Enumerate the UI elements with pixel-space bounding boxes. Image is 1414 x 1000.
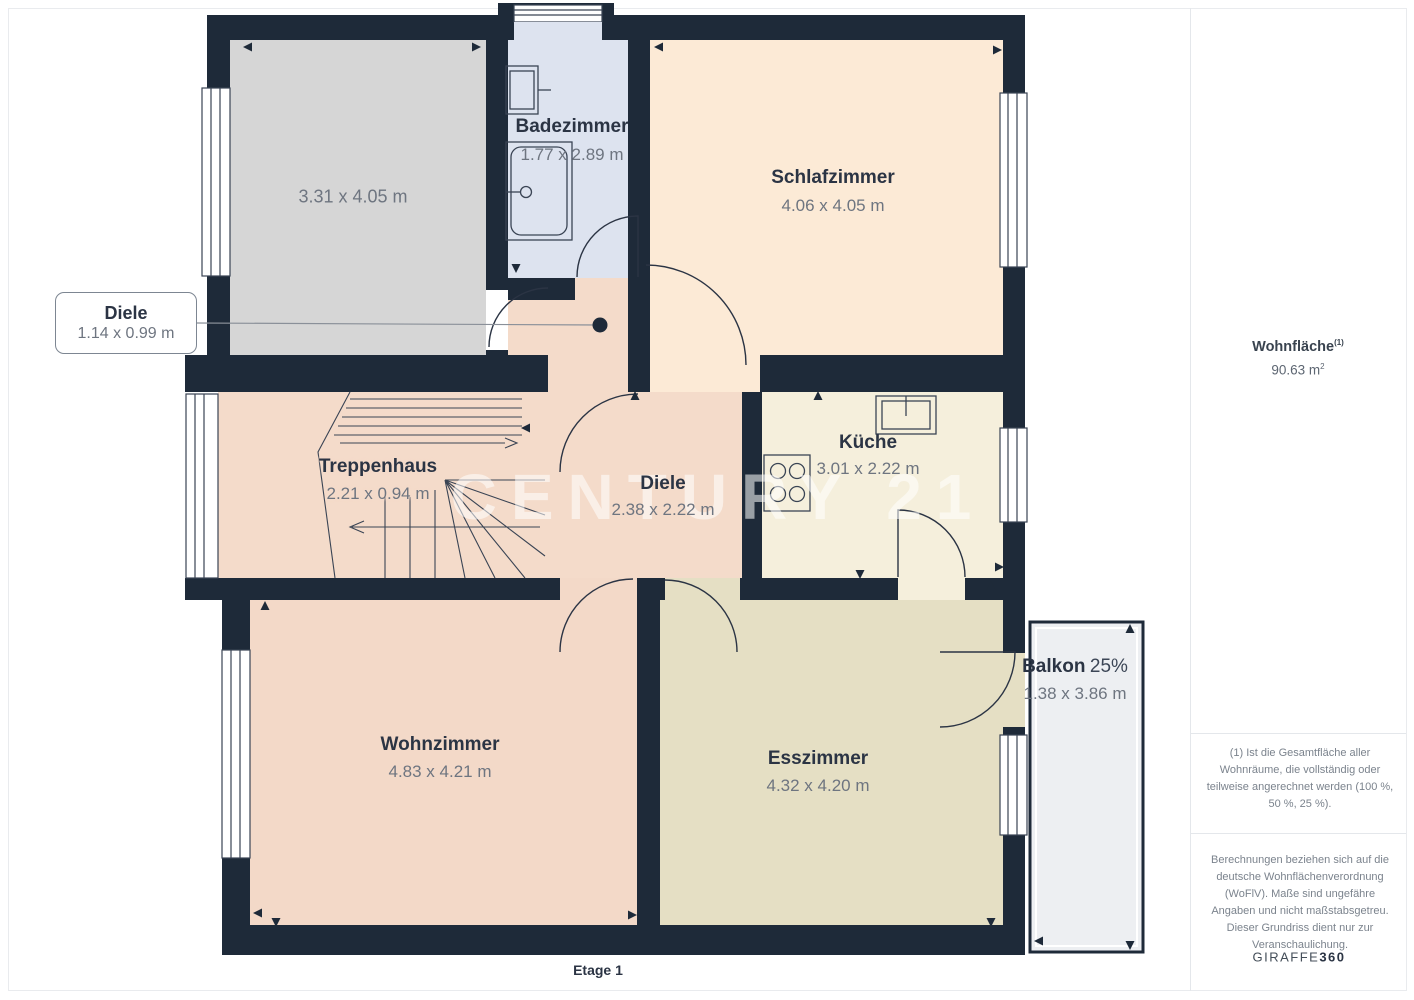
room-badezimmer-dims: 1.77 x 2.89 m xyxy=(520,145,623,165)
living-area-summary: Wohnfläche(1) 90.63 m2 xyxy=(1198,338,1398,377)
floorplan-page: CENTURY 21 3.31 x 4.05 m Badezimmer 1.77… xyxy=(0,0,1414,1000)
room-kueche-dims: 3.01 x 2.22 m xyxy=(816,459,919,479)
room-wohnzimmer-label: Wohnzimmer xyxy=(381,734,500,756)
room-abstellraum-dims: 3.31 x 4.05 m xyxy=(298,187,407,208)
footnote-2: Berechnungen beziehen sich auf die deuts… xyxy=(1204,852,1396,954)
living-area-value: 90.63 m2 xyxy=(1198,362,1398,378)
footnote-1: (1) Ist die Gesamtfläche aller Wohnräume… xyxy=(1204,745,1396,813)
room-badezimmer-label: Badezimmer xyxy=(516,116,629,138)
sidebar-section-divider-1 xyxy=(1190,733,1406,734)
room-wohnzimmer-dims: 4.83 x 4.21 m xyxy=(388,762,491,782)
callout-dot xyxy=(593,318,608,333)
room-schlafzimmer-dims: 4.06 x 4.05 m xyxy=(781,196,884,216)
room-diele-dims: 2.38 x 2.22 m xyxy=(611,500,714,520)
sidebar-section-divider-2 xyxy=(1190,833,1406,834)
room-balkon-label: Balkon 25% xyxy=(1022,656,1128,678)
room-diele-klein-dims: 1.14 x 0.99 m xyxy=(78,324,175,344)
room-treppenhaus-dims: 2.21 x 0.94 m xyxy=(326,484,429,504)
room-diele-klein-label: Diele xyxy=(104,302,147,325)
room-esszimmer-label: Esszimmer xyxy=(768,748,868,770)
room-diele-label: Diele xyxy=(640,473,685,495)
living-area-label: Wohnfläche(1) xyxy=(1198,338,1398,355)
room-esszimmer-dims: 4.32 x 4.20 m xyxy=(766,776,869,796)
room-treppenhaus-label: Treppenhaus xyxy=(319,456,437,478)
room-schlafzimmer-label: Schlafzimmer xyxy=(771,167,895,189)
room-balkon-percent: 25% xyxy=(1090,656,1128,677)
room-balkon-dims: 1.38 x 3.86 m xyxy=(1023,684,1126,704)
room-kueche-label: Küche xyxy=(839,432,897,454)
giraffe360-logo: GIRAFFE360 xyxy=(1252,950,1345,965)
sidebar-divider xyxy=(1190,8,1191,991)
floor-label: Etage 1 xyxy=(573,962,623,978)
room-diele-klein-callout: Diele 1.14 x 0.99 m xyxy=(55,292,197,354)
